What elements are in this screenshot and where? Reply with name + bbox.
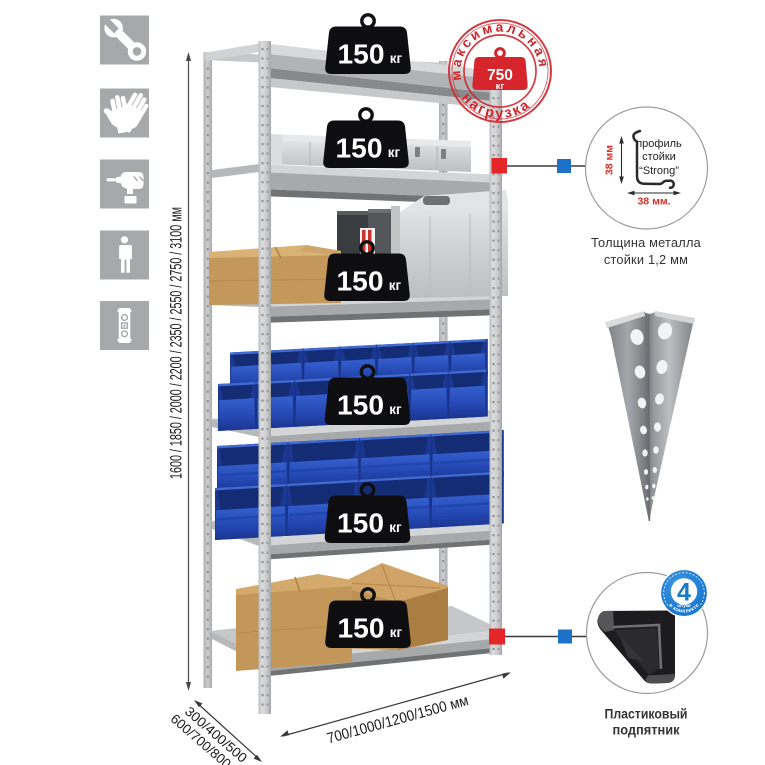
svg-text:38 мм.: 38 мм. xyxy=(637,196,670,208)
svg-text:подпятник: подпятник xyxy=(613,722,681,738)
svg-text:1600 / 1850 / 2000 / 2200 / 23: 1600 / 1850 / 2000 / 2200 / 2350 / 2550 … xyxy=(168,207,186,479)
svg-text:“Strong”: “Strong” xyxy=(639,165,679,177)
svg-text:Пластиковый: Пластиковый xyxy=(605,706,688,722)
svg-text:Толщина металла: Толщина металла xyxy=(591,235,702,250)
svg-text:стойки 1,2 мм: стойки 1,2 мм xyxy=(604,252,688,267)
svg-text:профиль: профиль xyxy=(636,138,682,150)
svg-text:38 мм: 38 мм xyxy=(604,145,616,175)
svg-text:штуки: штуки xyxy=(677,603,691,608)
svg-text:стойки: стойки xyxy=(642,151,676,163)
svg-text:кг: кг xyxy=(496,81,505,92)
